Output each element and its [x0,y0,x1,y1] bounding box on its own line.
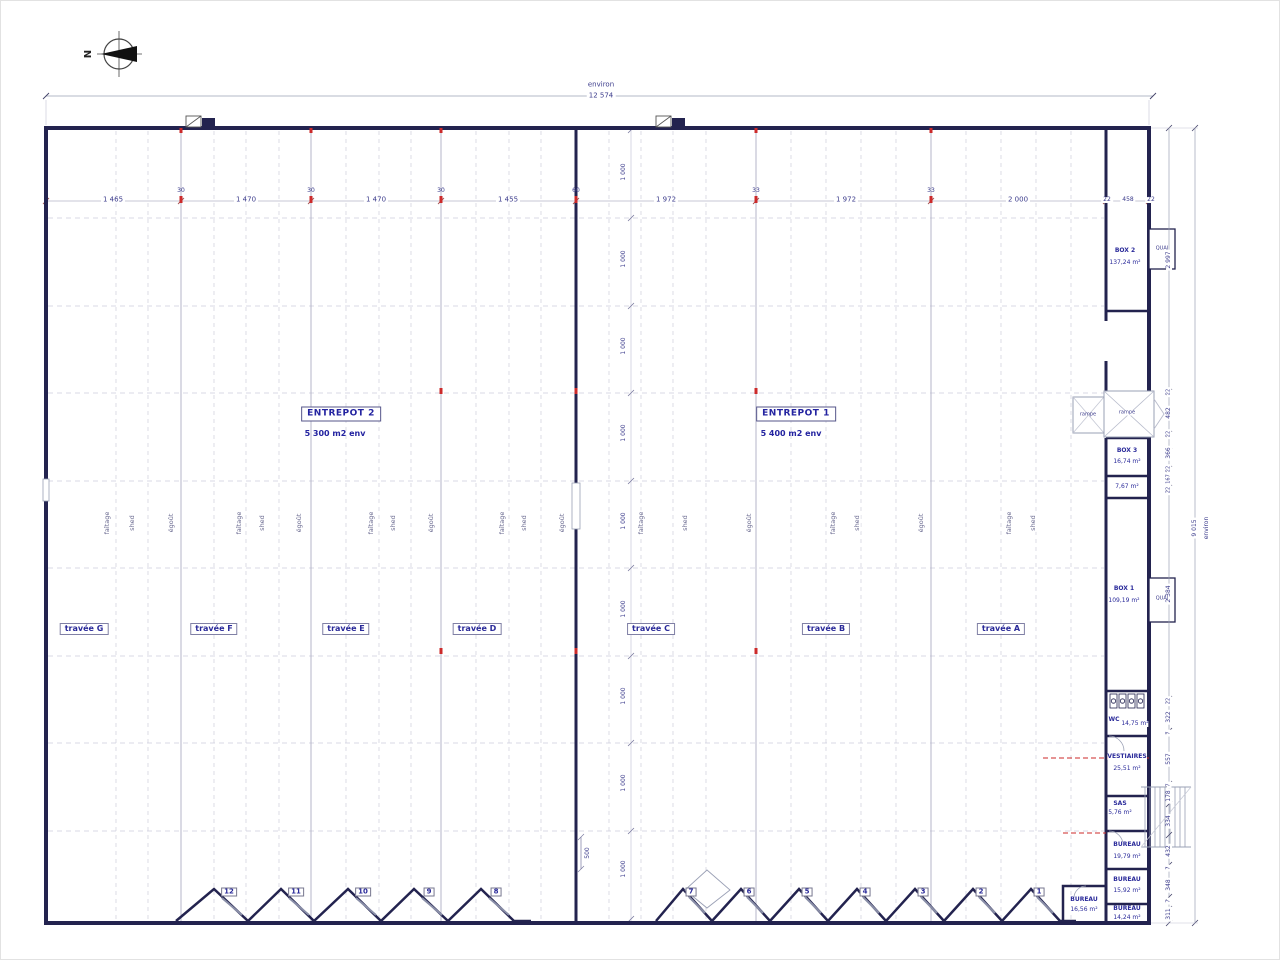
roof-line-label: faîtage [1006,511,1013,536]
room-wc-area: 14,75 m² [1121,721,1148,727]
door-number: 6 [744,888,755,897]
travee-label: travée F [190,623,237,635]
room-bureau1-area: 19,79 m² [1113,854,1140,860]
dimension-label: 1 000 [621,422,627,443]
dimension-label: 33 [927,188,935,194]
dimension-label: 482 [1166,405,1172,420]
rampe-left-label: rampe [1080,413,1096,418]
room-bureau4-name: BUREAU [1070,897,1098,903]
overall-height-word: environ [1204,517,1210,540]
room-sas-area: 5,76 m² [1108,810,1132,816]
roof-line-label: faîtage [104,511,111,536]
room-bureau3-area: 14,24 m² [1113,915,1140,921]
dividing-wall-door [572,483,580,529]
dimension-label: 1 000 [621,772,627,793]
top-dim-value: 12 574 [587,93,616,100]
roof-line-label: shed [521,514,528,532]
dimension-label: 1 000 [621,598,627,619]
room-sas-name: SAS [1113,801,1126,807]
dimension-label: 1 000 [621,248,627,269]
roof-line-label: shed [259,514,266,532]
north-arrow-icon [97,31,142,77]
dimension-label: 167 [1167,472,1172,486]
dimension-label: 7 [1167,864,1172,871]
dimension-label: 311 [1166,906,1172,921]
room-box3-area: 16,74 m² [1113,459,1140,465]
column-markers [180,128,933,654]
roof-line-label: faîtage [830,511,837,536]
dimension-label: 7 [1167,897,1172,904]
roof-line-label: égoût [559,513,566,534]
overall-height-dim: 9 015 [1192,517,1198,538]
room-quai-mid-label: QUAI [1156,597,1169,602]
travee-label: travée G [60,623,109,635]
travee-label: travée C [627,623,675,635]
floor-plan-linework [1,1,1280,960]
roof-line-label: faîtage [638,511,645,536]
dimension-label: 7 [1167,729,1172,736]
hall-entrepot2-area: 5 300 m2 env [305,430,366,438]
dimension-label: 22 [1167,696,1172,706]
rampe-right-label: rampe [1117,411,1137,416]
dimension-label: 1 000 [621,510,627,531]
roof-line-label: faîtage [499,511,506,536]
dimension-label: 22 [1167,485,1172,495]
room-vestiaires-name: VESTIAIRES [1107,754,1146,760]
dimension-label: 178 [1166,788,1172,803]
dimension-label: 22 [1167,429,1172,439]
roof-line-label: faîtage [236,511,243,536]
hall-entrepot2-label: ENTREPOT 2 [301,407,381,422]
bay-dimension-line [43,198,1156,204]
roof-line-label: shed [682,514,689,532]
dimension-label: 30 [307,188,315,194]
door-number: 5 [802,888,813,897]
room-quai-top-label: QUAI [1156,247,1169,252]
floor-plan: N environ 12 574 1 465 30 1 470 30 1 470… [0,0,1280,960]
dimension-label: 33 [752,188,760,194]
room-bureau4-area: 16,56 m² [1070,907,1097,913]
roof-line-label: égoût [746,513,753,534]
door-number: 2 [976,888,987,897]
dimension-label: 2 000 [1006,197,1030,204]
roof-line-label: shed [854,514,861,532]
north-label: N [84,50,94,58]
door-number: 7 [686,888,697,897]
dimension-label: 1 455 [496,197,520,204]
room-bureau2-name: BUREAU [1113,877,1141,883]
dimension-label: 1 465 [101,197,125,204]
dimension-label: 1 000 [621,161,627,182]
door-number: 12 [221,888,237,897]
hall-entrepot1-label: ENTREPOT 1 [756,407,836,422]
room-box1-area: 109,19 m² [1108,598,1139,604]
room-bureau3-name: BUREAU [1113,906,1141,912]
travee-label: travée E [322,623,369,635]
dimension-label: 322 [1166,709,1172,724]
room-bureau1-name: BUREAU [1113,842,1141,848]
room-bureau2-area: 15,92 m² [1113,888,1140,894]
door-number: 8 [491,888,502,897]
dimension-label: 60 [572,188,580,194]
roof-line-label: shed [390,514,397,532]
wc-fixtures [1110,694,1144,708]
dimension-label: 22 [1145,197,1157,203]
dimension-label: 30 [177,188,185,194]
dimension-label: 348 [1166,877,1172,892]
door-number: 10 [355,888,371,897]
dimension-label: 1 470 [234,197,258,204]
dimension-label: 30 [437,188,445,194]
left-wall-door [43,479,49,501]
room-box3-name: BOX 3 [1117,448,1137,454]
dimension-label: 22 [1167,387,1172,397]
door-number: 3 [918,888,929,897]
door-number: 11 [288,888,304,897]
room-767-area: 7,67 m² [1115,484,1139,490]
door-number: 1 [1034,888,1045,897]
travee-label: travée A [977,623,1025,635]
dimension-label: 458 [1120,197,1135,203]
travee-label: travée D [453,623,502,635]
hall-entrepot1-area: 5 400 m2 env [761,430,822,438]
dimension-label: 1 470 [364,197,388,204]
roof-line-label: égoût [428,513,435,534]
room-box2-name: BOX 2 [1115,248,1135,254]
dimension-label: 1 972 [834,197,858,204]
dimension-label: 2 997 [1166,249,1172,270]
dimension-label: 22 [1101,197,1113,203]
door-number: 9 [424,888,435,897]
door-number: 4 [860,888,871,897]
roof-line-label: égoût [918,513,925,534]
dimension-label: 500 [585,845,591,860]
room-vestiaires-area: 25,51 m² [1113,766,1140,772]
dimension-label: 1 000 [621,685,627,706]
roof-line-label: égoût [168,513,175,534]
roof-line-label: égoût [296,513,303,534]
room-wc-name: WC [1108,717,1119,723]
room-box2-area: 137,24 m² [1109,260,1140,266]
travee-label: travée B [802,623,850,635]
top-dim-word: environ [588,82,614,89]
roof-line-label: shed [129,514,136,532]
roof-vent-icon [186,116,685,127]
roof-line-label: shed [1030,514,1037,532]
dimension-label: 432 [1166,843,1172,858]
roof-line-label: faîtage [368,511,375,536]
room-box1-name: BOX 1 [1114,586,1134,592]
dimension-label: 1 000 [621,858,627,879]
dimension-label: 557 [1166,751,1172,766]
outer-wall [46,128,1149,923]
grid-frame-lines [181,130,931,921]
dimension-label: 334 [1166,813,1172,828]
door-arcs [1074,736,1124,898]
dimension-label: 1 972 [654,197,678,204]
dimension-label: 366 [1166,445,1172,460]
dimension-label: 1 000 [621,335,627,356]
